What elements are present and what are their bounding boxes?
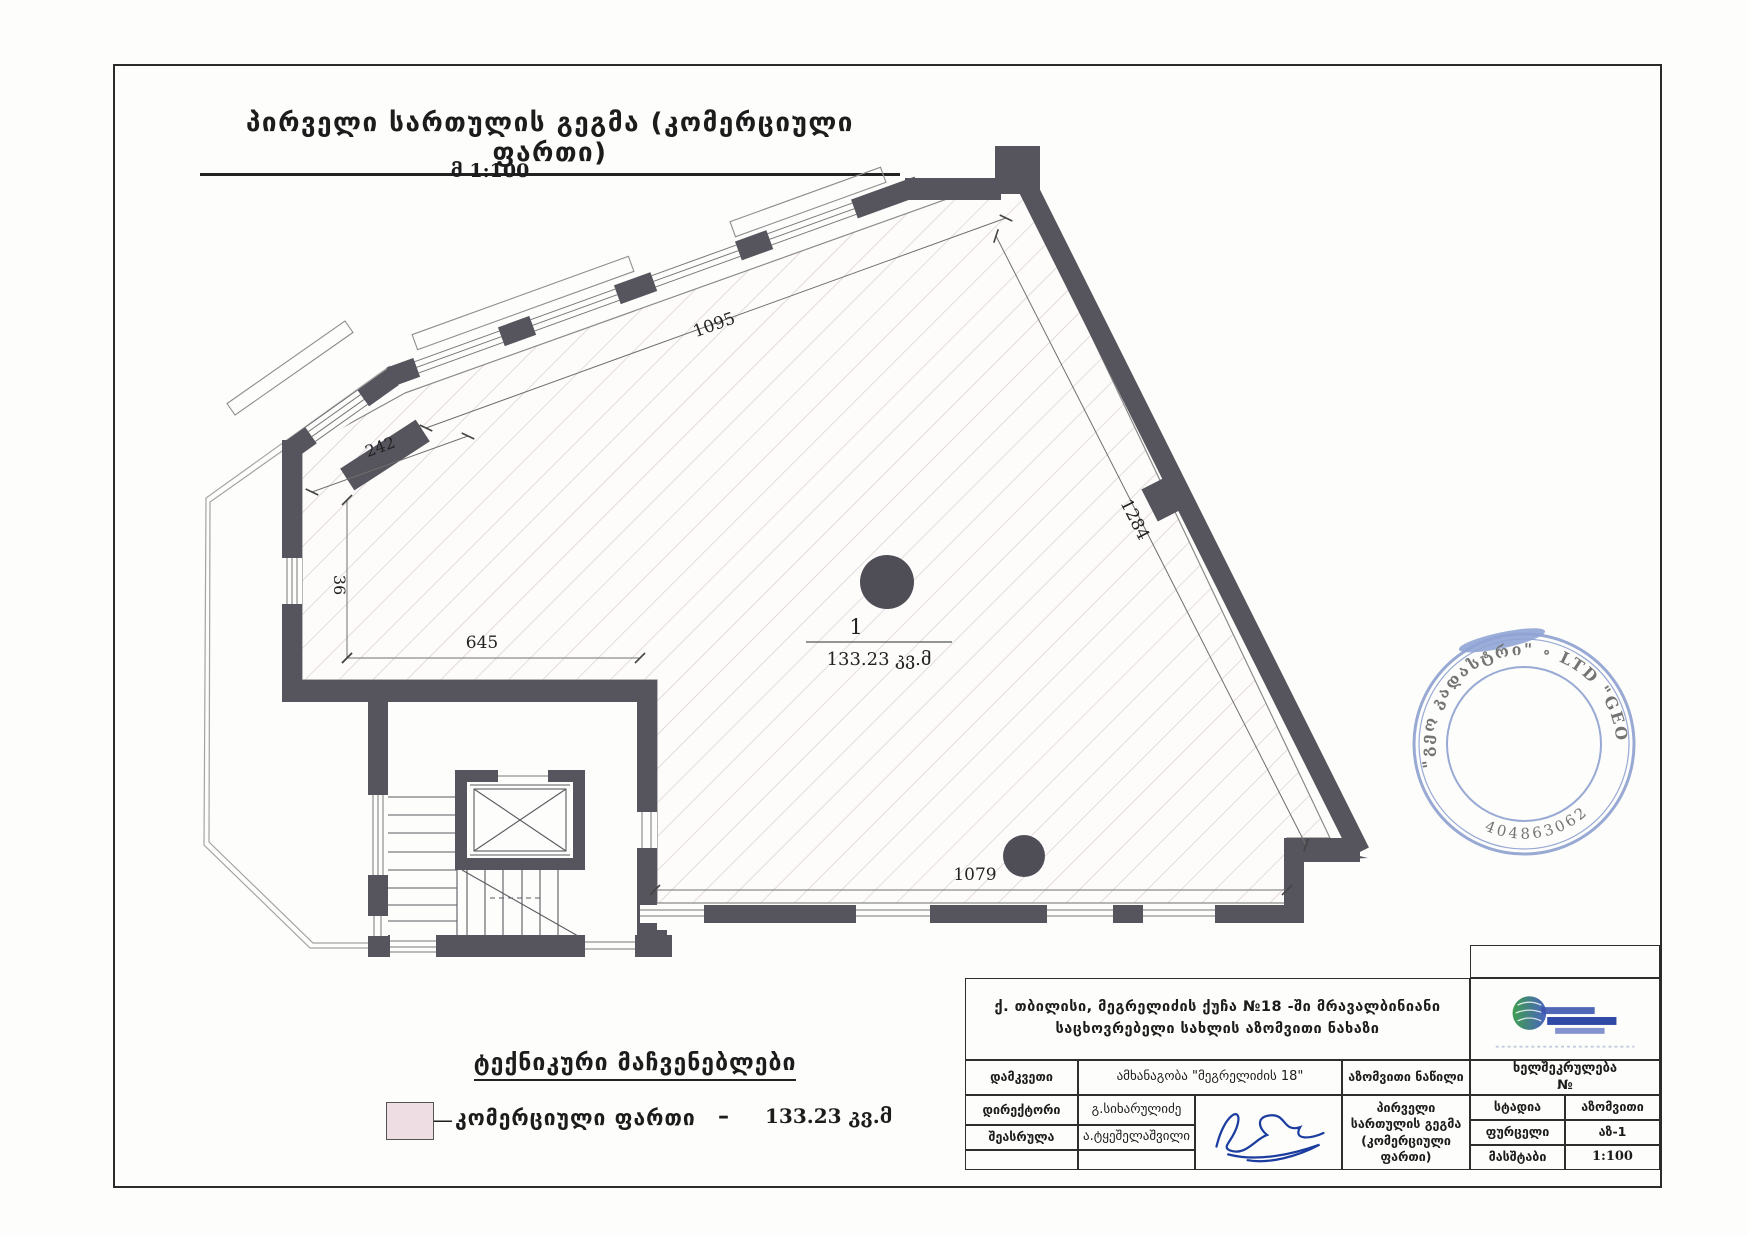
client-value-cell: ამხანაგობა "მეგრელიძის 18" [1078, 1060, 1342, 1095]
globe-icon [1513, 996, 1547, 1030]
window [282, 558, 302, 604]
room-area: 133.23 კვ.მ [827, 649, 932, 670]
stamp-ring-text: "გეო კადასტრი" ∘ LTD "GEO [1397, 620, 1632, 785]
column [860, 555, 914, 609]
elevator-shaft [455, 770, 585, 870]
list-value-cell: აზ-1 [1565, 1120, 1660, 1145]
stair-core [388, 770, 585, 936]
window [368, 795, 388, 875]
legend-swatch [386, 1102, 434, 1140]
logo-bar [1547, 1017, 1616, 1025]
title-block-main: ქ. თბილისი, მეგრელიძის ქუჩა №18 -ში მრავ… [965, 978, 1470, 1170]
sheet-title-cell: პირველი სართულის გეგმა (კომერციული ფართი… [1342, 1095, 1470, 1170]
company-logo [1474, 981, 1656, 1057]
legend-item-label: კომერციული ფართი [455, 1106, 696, 1130]
contract-number: № [1557, 1078, 1573, 1095]
legend-title-text: ტექნიკური მაჩვენებლები [474, 1050, 797, 1081]
director-value-cell: გ.სიხარულიძე [1078, 1095, 1195, 1125]
empty-cell [1078, 1150, 1195, 1170]
empty-cell [965, 1150, 1078, 1170]
empty-cell [1470, 945, 1660, 978]
client-label-cell: დამკვეთი [965, 1060, 1078, 1095]
legend-item-value: 133.23 კვ.მ [765, 1104, 892, 1128]
window [856, 905, 930, 923]
room-number: 1 [849, 615, 862, 639]
legend-dash: – [718, 1104, 729, 1129]
scale-label-cell: მასშტაბი [1470, 1145, 1565, 1170]
author-value-cell: ა.ტყეშელაშვილი [1078, 1125, 1195, 1150]
window [368, 916, 388, 936]
stamp-id-number: 404863062 [1479, 796, 1595, 853]
legend-title: ტექნიკური მაჩვენებლები [440, 1050, 830, 1081]
project-title-cell: ქ. თბილისი, მეგრელიძის ქუჩა №18 -ში მრავ… [965, 978, 1470, 1060]
svg-text:404863062: 404863062 [1479, 796, 1595, 853]
author-label-cell: შეასრულა [965, 1125, 1078, 1150]
stairs-bottom-flight [457, 868, 585, 936]
stairs-left-flight [388, 775, 457, 935]
logo-bar [1541, 1007, 1594, 1014]
contract-label: ხელშეკრულება [1513, 1061, 1617, 1078]
title-block-right: ხელშეკრულება № სტადია აზომვითი ფურცელი ა… [1470, 945, 1660, 1170]
dim-label-36: 36 [330, 575, 349, 595]
legend-dash: — [433, 1108, 453, 1132]
company-stamp: "გეო კადასტრი" ∘ LTD "GEO 404863062 [1393, 610, 1655, 875]
dim-label-1079: 1079 [953, 865, 996, 885]
window [1047, 905, 1113, 923]
list-label-cell: ფურცელი [1470, 1120, 1565, 1145]
window [585, 935, 635, 957]
scanned-floorplan-page: პირველი სართულის გეგმა (კომერციული ფართი… [0, 0, 1748, 1235]
signature-cell [1195, 1095, 1342, 1170]
logo-bar [1555, 1028, 1604, 1034]
dim-label-645: 645 [466, 633, 498, 653]
contract-cell: ხელშეკრულება № [1470, 1060, 1660, 1095]
door-opening [637, 812, 657, 848]
stage-label-cell: სტადია [1470, 1095, 1565, 1120]
column [1003, 835, 1045, 877]
signature [1199, 1097, 1338, 1168]
scale-value-cell: 1:100 [1565, 1145, 1660, 1170]
window [640, 905, 704, 923]
svg-text:"გეო კადასტრი" ∘ LTD "GEO: "გეო კადასტრი" ∘ LTD "GEO [1397, 620, 1632, 785]
window [1143, 905, 1215, 923]
stage-value-cell: აზომვითი [1565, 1095, 1660, 1120]
right-header-cell: აზომვითი ნაწილი [1342, 1060, 1470, 1095]
window [390, 935, 436, 957]
director-label-cell: დირექტორი [965, 1095, 1078, 1125]
logo-cell [1470, 978, 1660, 1060]
